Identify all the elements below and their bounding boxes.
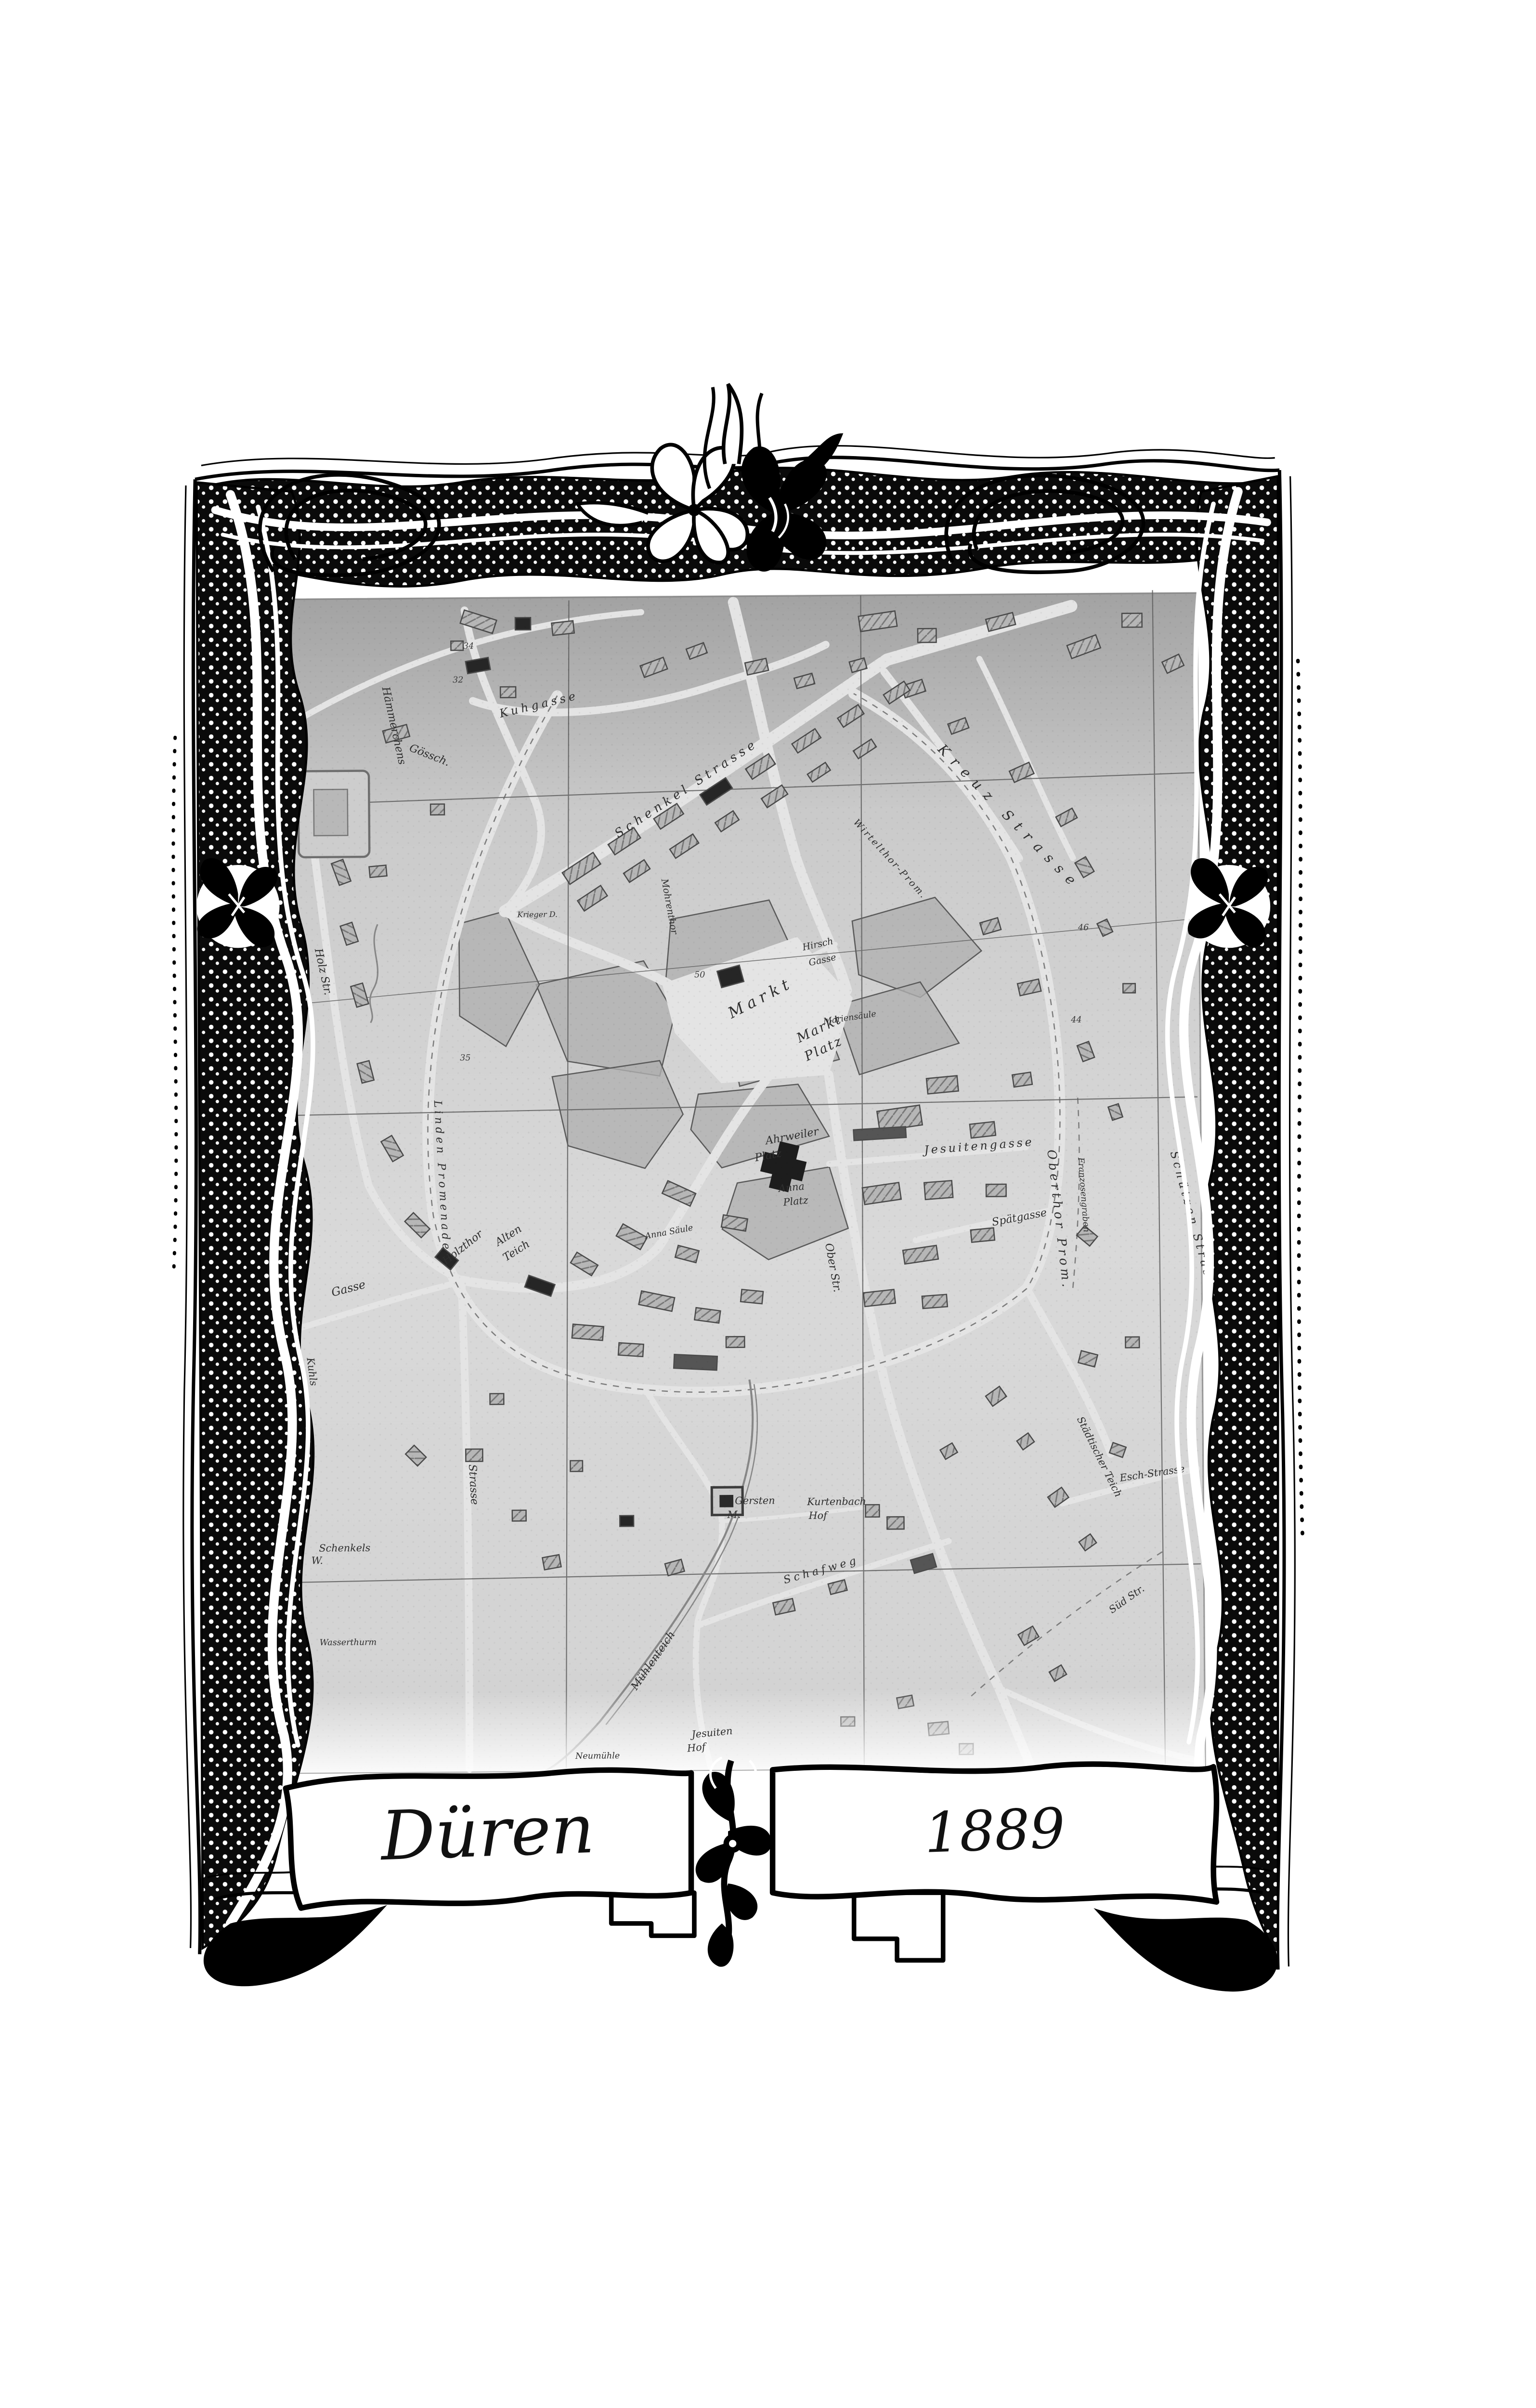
street-label: Kurtenbach: [807, 1495, 866, 1507]
artwork-svg: HämmerchensGössch.KuhgasseSchenkel Stras…: [0, 0, 1536, 2408]
map-bottom-fade: [292, 1687, 1205, 1773]
street-label: Strasse: [466, 1464, 481, 1505]
house-number-label: 34: [463, 641, 474, 651]
street-label: Hof: [686, 1741, 708, 1754]
framed-map-artwork: HämmerchensGössch.KuhgasseSchenkel Stras…: [0, 0, 1536, 2408]
house-number-label: 44: [1070, 1015, 1081, 1025]
map-scan-texture: [285, 593, 1205, 1773]
left-flower-icon: [196, 858, 279, 948]
map-group: HämmerchensGössch.KuhgasseSchenkel Stras…: [285, 589, 1224, 1773]
house-number-label: 46: [1078, 923, 1089, 932]
street-label: Hof: [808, 1510, 829, 1521]
right-flower-icon: [1187, 858, 1270, 948]
house-number-label: 35: [460, 1053, 470, 1063]
banner-title-text: Düren: [378, 1790, 596, 1876]
street-label: W.: [312, 1555, 323, 1566]
banner-year-text: 1889: [923, 1796, 1066, 1866]
street-label: Gersten: [735, 1495, 775, 1507]
street-label: M.: [727, 1509, 741, 1520]
street-label: Schenkels: [319, 1542, 370, 1554]
street-label: Krieger D.: [517, 910, 558, 919]
street-label: Platz: [782, 1194, 809, 1208]
page: { "banner": { "title": "Düren", "year": …: [0, 0, 1536, 2408]
street-label: Neumühle: [575, 1751, 620, 1761]
street-label: Wasserthurm: [320, 1637, 377, 1648]
house-number-label: 50: [694, 970, 705, 980]
house-number-label: 32: [453, 675, 463, 685]
